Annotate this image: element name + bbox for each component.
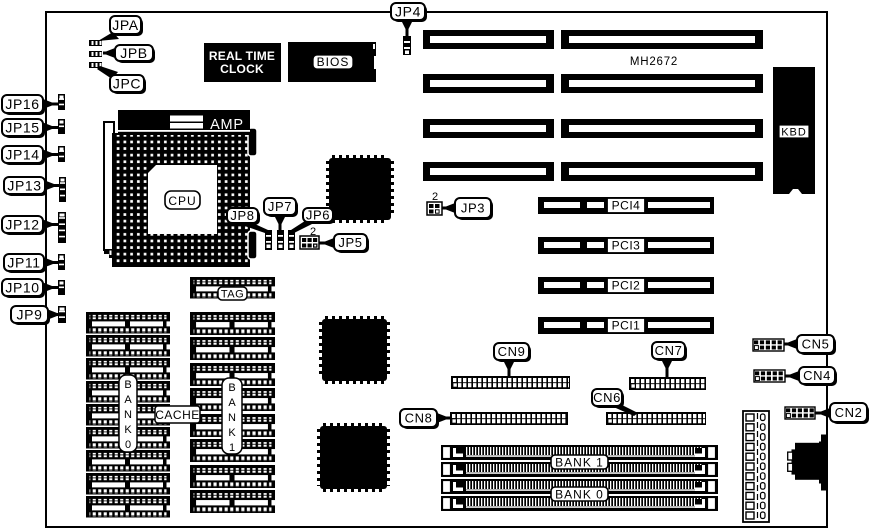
svg-text:JP4: JP4 — [395, 4, 421, 20]
svg-text:PCI2: PCI2 — [612, 279, 641, 293]
svg-text:BANK 1: BANK 1 — [555, 456, 604, 470]
svg-text:JP14: JP14 — [5, 147, 39, 163]
svg-text:CACHE: CACHE — [155, 408, 200, 422]
svg-text:KBD: KBD — [781, 127, 807, 139]
svg-text:JP15: JP15 — [5, 120, 39, 136]
svg-text:CN2: CN2 — [835, 405, 863, 420]
svg-text:JPC: JPC — [113, 76, 141, 92]
svg-text:JP13: JP13 — [7, 178, 41, 194]
svg-text:CN7: CN7 — [655, 343, 683, 358]
svg-text:2: 2 — [310, 226, 316, 238]
svg-text:JP16: JP16 — [5, 96, 39, 112]
svg-text:CLOCK: CLOCK — [220, 62, 264, 76]
svg-text:B: B — [124, 379, 131, 391]
svg-text:JP8: JP8 — [230, 208, 254, 223]
svg-text:0: 0 — [125, 439, 131, 451]
svg-text:PCI1: PCI1 — [612, 319, 641, 333]
svg-text:N: N — [124, 409, 132, 421]
svg-text:K: K — [124, 424, 132, 436]
svg-text:JP6: JP6 — [306, 208, 330, 223]
svg-text:CN9: CN9 — [498, 344, 526, 359]
svg-text:JP3: JP3 — [461, 201, 485, 216]
svg-text:PCI4: PCI4 — [612, 199, 641, 213]
svg-text:JPA: JPA — [112, 17, 138, 33]
svg-text:JP12: JP12 — [5, 217, 39, 233]
svg-text:N: N — [228, 412, 236, 424]
svg-text:MH2672: MH2672 — [630, 56, 678, 68]
svg-text:JP5: JP5 — [338, 235, 362, 250]
svg-text:A: A — [124, 394, 132, 406]
svg-text:CN5: CN5 — [802, 337, 830, 352]
svg-text:CN6: CN6 — [593, 390, 621, 405]
svg-text:B: B — [228, 382, 235, 394]
svg-text:1: 1 — [229, 442, 235, 454]
svg-text:JP7: JP7 — [268, 199, 292, 214]
svg-text:PCI3: PCI3 — [612, 239, 641, 253]
svg-text:JP11: JP11 — [7, 255, 40, 271]
svg-text:JP10: JP10 — [5, 280, 39, 296]
svg-text:TAG: TAG — [221, 289, 244, 301]
svg-text:CN4: CN4 — [803, 368, 831, 383]
svg-text:A: A — [228, 397, 236, 409]
svg-text:BIOS: BIOS — [317, 55, 350, 69]
svg-text:K: K — [228, 427, 236, 439]
svg-text:JPB: JPB — [120, 45, 147, 61]
svg-text:CPU: CPU — [168, 194, 196, 208]
svg-text:REAL TIME: REAL TIME — [209, 49, 275, 63]
svg-text:AMP: AMP — [210, 117, 244, 133]
svg-text:CN8: CN8 — [405, 411, 433, 426]
svg-text:BANK 0: BANK 0 — [555, 488, 604, 502]
svg-text:2: 2 — [432, 191, 438, 203]
svg-text:JP9: JP9 — [17, 307, 43, 323]
